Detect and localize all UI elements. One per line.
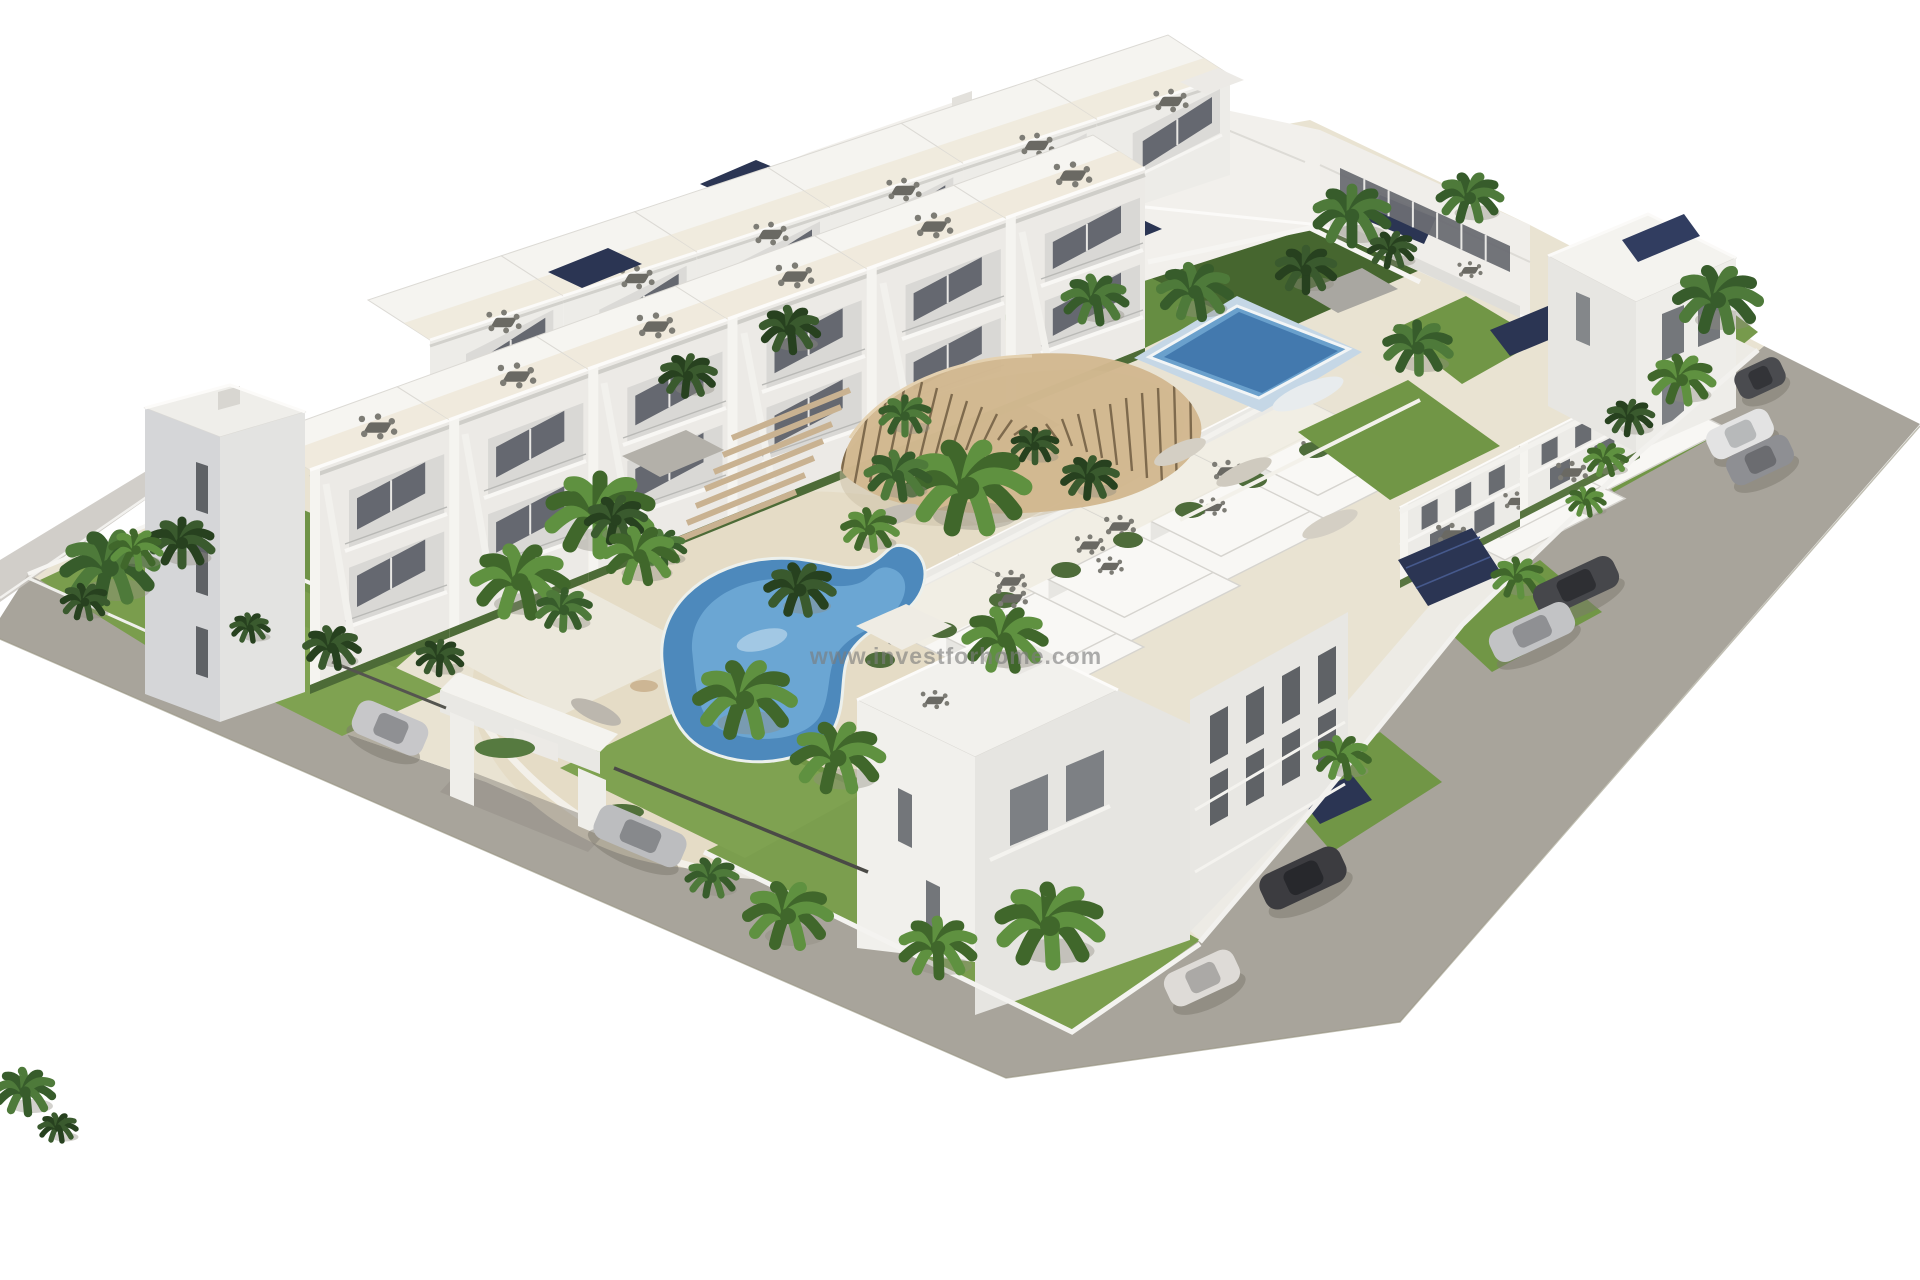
svg-text:www.investforhome.com: www.investforhome.com <box>809 643 1102 669</box>
